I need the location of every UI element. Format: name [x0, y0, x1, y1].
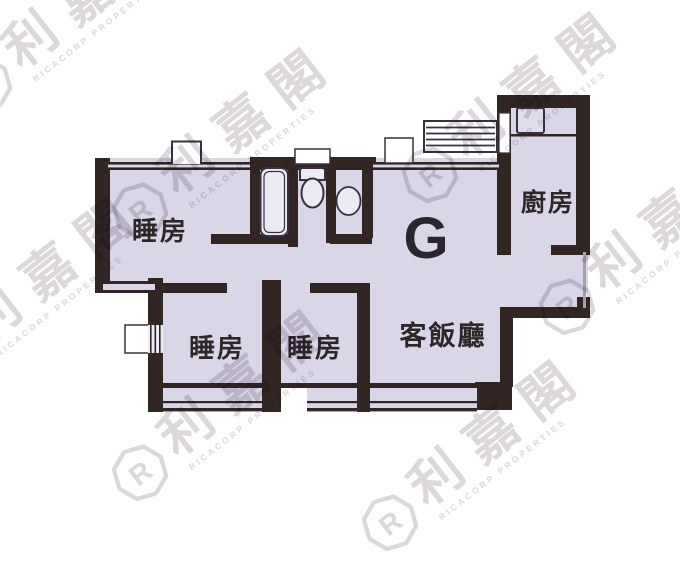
- window-bedroom3-bottom: [307, 388, 357, 411]
- wall-step-horizontal: [503, 307, 590, 318]
- window-living-bottom: [370, 388, 477, 411]
- toilet-icon: [300, 168, 325, 208]
- wall-basin-living: [362, 157, 373, 238]
- wall-toilet-basin: [326, 165, 336, 243]
- label-kitchen: 廚房: [521, 188, 575, 217]
- window-bedroom2-bottom: [163, 388, 262, 411]
- exterior-notch: [281, 388, 307, 412]
- wash-basin-icon: [337, 187, 361, 215]
- kitchen-counter-line: [511, 134, 576, 137]
- wall-bedroom3-right: [357, 283, 370, 412]
- bedroom1-bay-window: [172, 142, 201, 165]
- toilet-window: [295, 149, 330, 164]
- wall-bedroom1-right: [250, 162, 260, 243]
- wall-basin-bottom: [330, 234, 372, 244]
- label-bedroom-3: 睡房: [287, 333, 343, 363]
- wall-kitchen-right: [576, 95, 590, 255]
- label-living-dining: 客飯廳: [400, 320, 487, 351]
- unit-label: G: [403, 206, 448, 271]
- floorplan-stage: G 睡房 睡房 睡房 廚房 客飯廳 R 利嘉閣 RICACORP PROPERT…: [0, 0, 680, 510]
- wall-living-sill: [365, 383, 477, 388]
- bedroom2-side-window: [125, 325, 163, 353]
- floorplan-drawing: G 睡房 睡房 睡房 廚房 客飯廳: [0, 0, 680, 510]
- wall-left: [95, 158, 110, 293]
- label-bedroom-1: 睡房: [132, 216, 188, 246]
- wall-bedroom-sill: [163, 383, 357, 388]
- kitchen-wall-opening: [499, 113, 510, 153]
- ac-louver-icon: [424, 121, 497, 152]
- label-bedroom-2: 睡房: [189, 333, 245, 363]
- thin-right-edge: [583, 252, 586, 308]
- kitchen-sink-icon: [517, 108, 544, 133]
- bathtub-icon: [261, 168, 289, 236]
- window-left-band: [103, 281, 155, 293]
- platform-box-icon: [385, 138, 413, 163]
- wall-bedroom-divider: [262, 280, 281, 412]
- wall-bedroom2-top: [163, 283, 227, 293]
- logo-letter: R: [373, 505, 408, 542]
- wall-step-vertical: [500, 307, 513, 387]
